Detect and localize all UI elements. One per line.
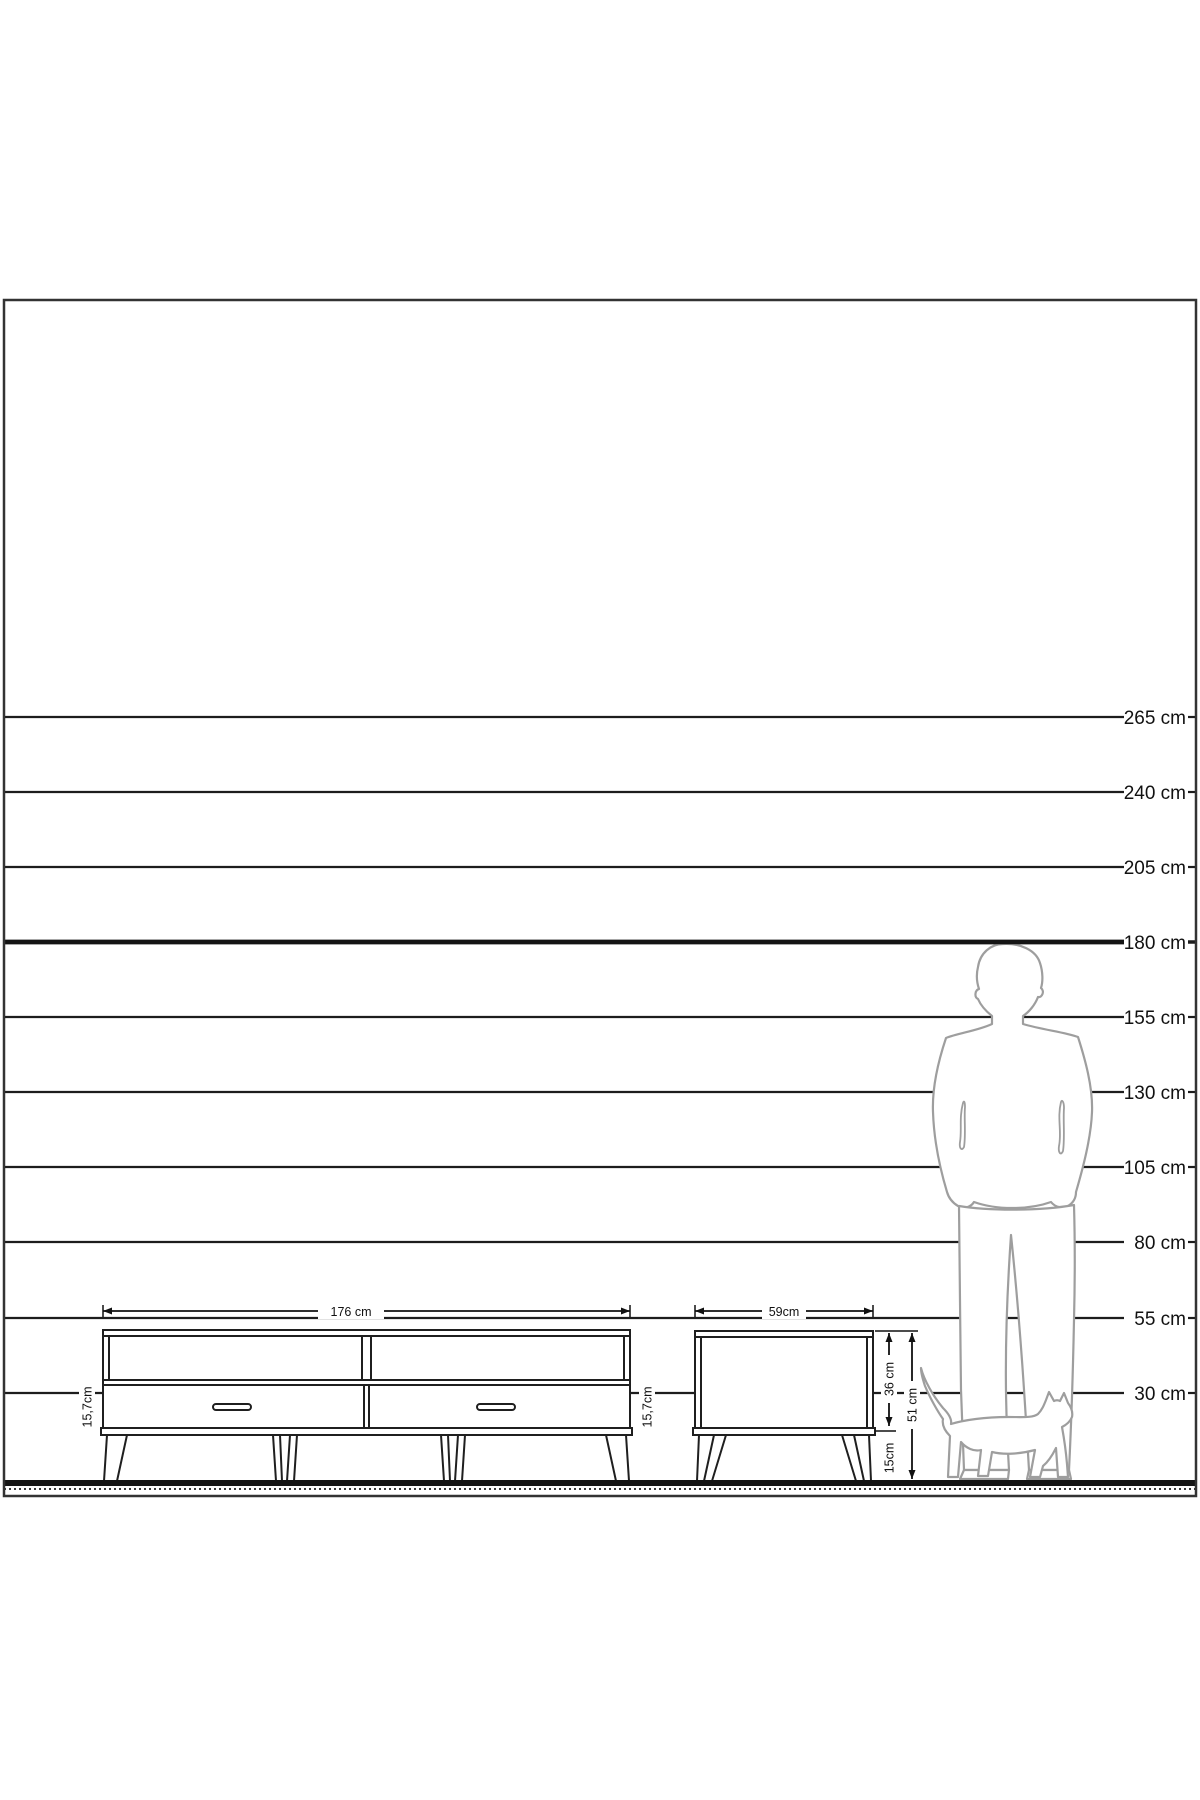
man-body-outline — [933, 944, 1092, 1208]
scale-label: 55 cm — [1134, 1309, 1186, 1330]
dim-side-table-width: 59cm — [695, 1303, 873, 1319]
tv-stand-width-label: 176 cm — [331, 1305, 372, 1319]
tv-stand-leg — [273, 1435, 282, 1481]
tv-stand-leg — [287, 1435, 297, 1481]
scale-label: 180 cm — [1124, 933, 1186, 954]
tv-stand-leg — [104, 1435, 127, 1481]
tv-stand-leg — [455, 1435, 465, 1481]
dim-tv-stand-width: 176 cm — [103, 1303, 630, 1319]
tv-stand-leg — [441, 1435, 450, 1481]
dim-drawer-height-right: 15,7cm — [639, 1381, 655, 1433]
diagram-frame — [4, 300, 1196, 1496]
man-silhouette — [933, 944, 1092, 1479]
scale-row: 265 cm — [4, 708, 1196, 729]
side-table-body-height-label: 36 cm — [883, 1362, 897, 1396]
drawer-height-right-label: 15,7cm — [641, 1387, 655, 1428]
side-table — [693, 1331, 875, 1481]
tv-stand — [101, 1330, 632, 1481]
scale-row: 240 cm — [4, 783, 1196, 804]
dim-drawer-height-left: 15,7cm — [79, 1381, 95, 1433]
side-table-width-label: 59cm — [769, 1305, 800, 1319]
tv-stand-shelf-board — [103, 1380, 630, 1385]
scale-label: 80 cm — [1134, 1233, 1186, 1254]
scale-label: 205 cm — [1124, 858, 1186, 879]
floor — [4, 1483, 1196, 1489]
scale-label: 30 cm — [1134, 1384, 1186, 1405]
scale-row: 205 cm — [4, 858, 1196, 879]
side-table-bottom-board — [693, 1428, 875, 1435]
drawer-handle-left — [213, 1404, 251, 1410]
side-table-carcass — [695, 1331, 873, 1428]
side-table-top-board — [695, 1331, 873, 1337]
dim-side-table-total-height: 51 cm — [904, 1333, 920, 1479]
drawer-handle-right — [477, 1404, 515, 1410]
scale-label: 105 cm — [1124, 1158, 1186, 1179]
tv-stand-leg — [606, 1435, 629, 1481]
side-table-total-height-label: 51 cm — [906, 1388, 920, 1422]
tv-stand-bottom-board — [101, 1428, 632, 1435]
drawer-height-left-label: 15,7cm — [81, 1387, 95, 1428]
tv-stand-top-board — [103, 1330, 630, 1336]
scale-label: 265 cm — [1124, 708, 1186, 729]
side-table-leg-height-label: 15cm — [883, 1443, 897, 1474]
furniture-scale-diagram: 265 cm 240 cm 205 cm 180 cm 155 cm 130 c… — [0, 0, 1200, 1800]
scale-label: 240 cm — [1124, 783, 1186, 804]
scale-label: 155 cm — [1124, 1008, 1186, 1029]
scale-label: 130 cm — [1124, 1083, 1186, 1104]
